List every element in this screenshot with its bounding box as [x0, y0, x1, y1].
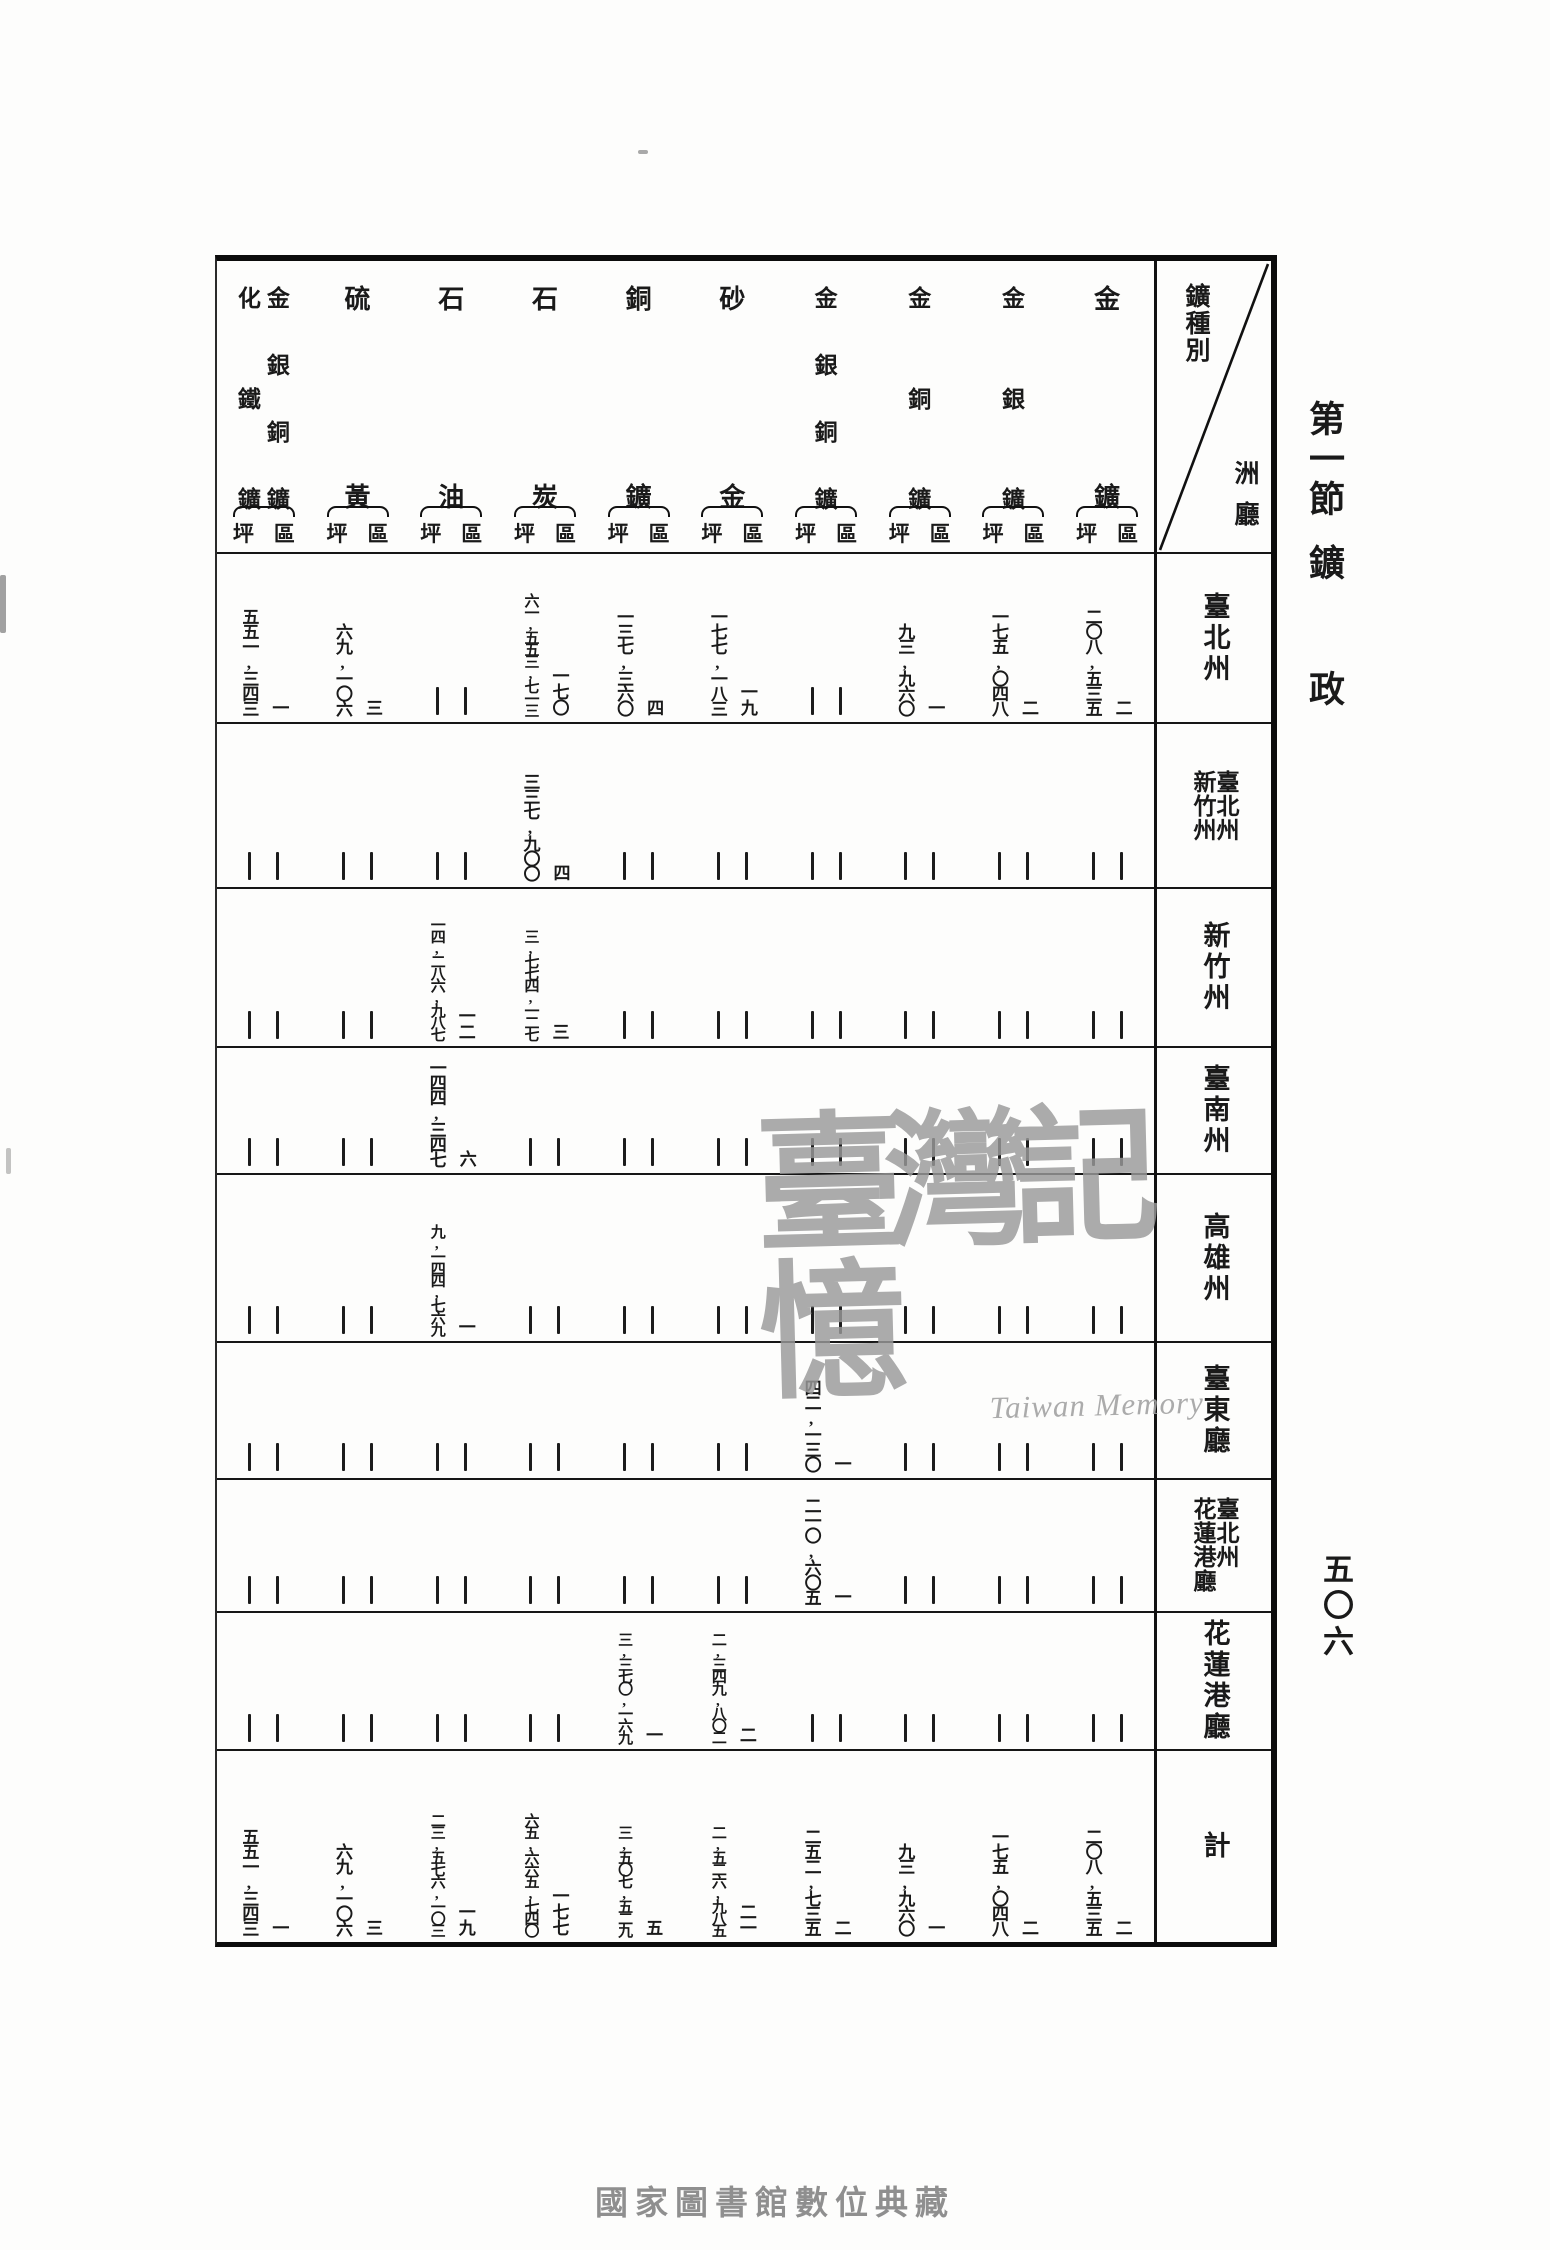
empty-dash — [557, 1138, 560, 1166]
table-cell — [1060, 1611, 1154, 1750]
empty-dash — [529, 1714, 532, 1742]
cell-values — [873, 889, 967, 1046]
cell-values — [967, 1343, 1061, 1478]
empty-dash — [1026, 1443, 1029, 1471]
cell-values: 九,一四四,七六九一 — [404, 1175, 498, 1341]
empty-dash — [342, 1011, 345, 1039]
ku-value: 四 — [551, 864, 568, 880]
cell-values: 一四四,三四七六 — [404, 1048, 498, 1174]
empty-dash — [436, 687, 439, 715]
column-header: 金銀銅鑛坪區 — [779, 261, 873, 552]
empty-dash — [998, 1306, 1001, 1334]
empty-dash — [1120, 1011, 1123, 1039]
empty-dash — [464, 1714, 467, 1742]
empty-dash — [811, 687, 814, 715]
column-name: 銅鑛 — [592, 287, 686, 511]
empty-dash — [529, 1138, 532, 1166]
cell-values — [311, 1343, 405, 1478]
column-header: 硫黃坪區 — [311, 261, 405, 552]
tsubo-value: 六一,五五三,七一三 — [522, 593, 537, 715]
scan-artifact — [6, 1148, 11, 1174]
cell-values — [592, 1175, 686, 1341]
region-label-text: 臺南州 — [1201, 1064, 1228, 1157]
cell-values: 二〇八,五三五二 — [1060, 1751, 1154, 1942]
empty-dash — [1092, 852, 1095, 880]
unit-count-label: 區 — [1117, 518, 1138, 548]
region-label: 臺南州 — [1157, 1048, 1271, 1174]
brace-icon — [233, 506, 295, 517]
table-cell — [873, 1046, 967, 1174]
unit-row: 坪區 — [233, 506, 295, 548]
cell-values — [217, 1343, 311, 1478]
column-name-line: 石油 — [438, 287, 464, 511]
section-title-text-2: 鑛 — [1306, 544, 1342, 584]
region-label-cell: 臺南州 — [1157, 1046, 1271, 1174]
region-label-cell: 臺北州 花蓮港廳 — [1157, 1478, 1271, 1611]
tsubo-value: 二,三四九,八〇二 — [710, 1632, 725, 1742]
ku-value: 一 — [926, 699, 943, 715]
cell-values: 六一,五五三,七一三一七〇 — [498, 554, 592, 722]
table-cell: 一四,二八六,九八七一二 — [404, 887, 498, 1046]
cell-values — [873, 1480, 967, 1611]
unit-area-label: 坪 — [982, 518, 1003, 548]
table-cell — [217, 1046, 311, 1174]
cell-values: 九三,九六〇一 — [873, 554, 967, 722]
region-label-text: 臺北州 新竹州 — [1191, 770, 1237, 842]
empty-dash — [248, 1138, 251, 1166]
table-cell — [1060, 887, 1154, 1046]
column-name-line: 石炭 — [532, 287, 558, 511]
table-cell — [498, 1173, 592, 1341]
table-cell — [686, 1478, 780, 1611]
unit-labels: 坪區 — [420, 518, 482, 548]
scan-artifact — [0, 575, 6, 633]
table-cell: 二〇八,五三五二 — [1060, 1749, 1154, 1942]
cell-values — [311, 1613, 405, 1750]
table-cell — [217, 1478, 311, 1611]
region-label-text: 高雄州 — [1201, 1212, 1228, 1305]
unit-area-label: 坪 — [1076, 518, 1097, 548]
column-name-line: 金銀銅鑛 — [267, 287, 290, 511]
cell-values — [1060, 1175, 1154, 1341]
mine-type-column: 石炭坪區六一,五五三,七一三一七〇三三七,九〇〇四三,七七四,一二七三六五,六六… — [498, 261, 592, 1942]
empty-dash — [839, 687, 842, 715]
cell-values — [404, 724, 498, 887]
table-cell — [592, 722, 686, 887]
column-header: 石油坪區 — [404, 261, 498, 552]
mine-type-column: 砂金坪區一七七,一八三一九二,三四九,八〇二二二,五二六,九八五二一 — [686, 261, 780, 1942]
region-label: 臺東廳 — [1157, 1343, 1271, 1478]
empty-dash — [1092, 1443, 1095, 1471]
table-cell — [1060, 1046, 1154, 1174]
ku-value: 三 — [550, 1023, 567, 1039]
ku-value: 二一 — [738, 1903, 755, 1935]
cell-values: 六五,六六五,七四〇一七七 — [498, 1751, 592, 1942]
cell-values: 二,三四九,八〇二二 — [686, 1613, 780, 1750]
mine-type-column: 石油坪區一四,二八六,九八七一二一四四,三四七六九,一四四,七六九一二三,五七六… — [404, 261, 498, 1942]
unit-labels: 坪區 — [795, 518, 857, 548]
cell-values — [498, 1175, 592, 1341]
tsubo-value: 六九,一〇六 — [334, 623, 351, 715]
unit-count-label: 區 — [461, 518, 482, 548]
empty-dash — [529, 1576, 532, 1604]
empty-dash — [932, 1138, 935, 1166]
table-cell — [217, 722, 311, 887]
table-cell — [498, 1478, 592, 1611]
column-name-char: 砂 — [719, 287, 745, 313]
empty-dash — [623, 1138, 626, 1166]
region-label-text: 計 — [1201, 1831, 1228, 1862]
cell-values — [1060, 1048, 1154, 1174]
empty-dash — [932, 1011, 935, 1039]
empty-dash — [839, 852, 842, 880]
unit-area-label: 坪 — [420, 518, 441, 548]
unit-labels: 坪區 — [701, 518, 763, 548]
tsubo-value: 九,一四四,七六九 — [429, 1224, 444, 1334]
cell-values — [967, 1613, 1061, 1750]
tsubo-value: 二〇八,五三五 — [1084, 1828, 1101, 1935]
table-cell — [592, 1341, 686, 1478]
tsubo-value: 二,五二六,九八五 — [710, 1825, 725, 1935]
cell-values: 一七七,一八三一九 — [686, 554, 780, 722]
region-label-text: 花蓮港廳 — [1201, 1619, 1228, 1743]
ku-value: 一九 — [739, 683, 756, 715]
corner-region-label: 洲廳 — [1232, 460, 1257, 542]
table-cell: 二,三四九,八〇二二 — [686, 1611, 780, 1750]
cell-values: 二三,五七六,一〇三一九 — [404, 1751, 498, 1942]
table-cell — [967, 1046, 1061, 1174]
empty-dash — [651, 1306, 654, 1334]
column-header: 砂金坪區 — [686, 261, 780, 552]
empty-dash — [998, 1011, 1001, 1039]
region-label: 新竹州 — [1157, 889, 1271, 1046]
cell-values — [779, 1175, 873, 1341]
unit-area-label: 坪 — [701, 518, 722, 548]
table-cell — [967, 1611, 1061, 1750]
column-name: 金銀銅鑛化鐵鑛 — [217, 287, 311, 511]
table-cell: 一七七,一八三一九 — [686, 552, 780, 722]
cell-values — [404, 1613, 498, 1750]
table-cell — [311, 1173, 405, 1341]
empty-dash — [745, 1011, 748, 1039]
unit-row: 坪區 — [982, 506, 1044, 548]
cell-values — [1060, 889, 1154, 1046]
unit-count-label: 區 — [1023, 518, 1044, 548]
empty-dash — [998, 852, 1001, 880]
empty-dash — [1026, 1138, 1029, 1166]
empty-dash — [436, 1576, 439, 1604]
table-cell — [404, 722, 498, 887]
tsubo-value: 五五一,三四三 — [240, 608, 257, 715]
cell-values — [592, 889, 686, 1046]
region-label-cell: 花蓮港廳 — [1157, 1611, 1271, 1750]
ku-value: 一 — [926, 1919, 943, 1935]
ku-value: 三 — [364, 699, 381, 715]
ku-value: 四 — [645, 699, 662, 715]
empty-dash — [904, 1576, 907, 1604]
empty-dash — [464, 852, 467, 880]
table-cell: 六九,一〇六三 — [311, 1749, 405, 1942]
empty-dash — [623, 1576, 626, 1604]
table-cell: 一三七,三六〇四 — [592, 552, 686, 722]
ku-value: 三 — [364, 1919, 381, 1935]
region-label: 臺北州 新竹州 — [1157, 724, 1271, 887]
tsubo-value: 三,五〇七,五二九 — [616, 1825, 631, 1935]
empty-dash — [248, 1714, 251, 1742]
ku-value: 一 — [644, 1726, 661, 1742]
empty-dash — [651, 1576, 654, 1604]
table-cell: 六九,一〇六三 — [311, 552, 405, 722]
cell-values — [967, 1048, 1061, 1174]
unit-labels: 坪區 — [514, 518, 576, 548]
ku-value: 二 — [1020, 699, 1037, 715]
unit-row: 坪區 — [420, 506, 482, 548]
mine-type-column: 金鑛坪區二〇八,五三五二二〇八,五三五二 — [1060, 261, 1154, 1942]
empty-dash — [745, 1306, 748, 1334]
empty-dash — [342, 1443, 345, 1471]
unit-labels: 坪區 — [233, 518, 295, 548]
cell-values — [779, 554, 873, 722]
region-label-text: 新竹州 — [1201, 921, 1228, 1014]
empty-dash — [839, 1138, 842, 1166]
column-name-line: 金銀銅鑛 — [815, 287, 838, 511]
tsubo-value: 二三,五七六,一〇三 — [429, 1813, 444, 1935]
cell-values: 三,五〇七,五二九五 — [592, 1751, 686, 1942]
ku-value: 一 — [833, 1588, 850, 1604]
table-cell: 二,五二六,九八五二一 — [686, 1749, 780, 1942]
empty-dash — [248, 1443, 251, 1471]
column-name: 金銅鑛 — [873, 287, 967, 511]
cell-values: 二五二,七三五二 — [779, 1751, 873, 1942]
empty-dash — [342, 1714, 345, 1742]
empty-dash — [248, 852, 251, 880]
empty-dash — [998, 1138, 1001, 1166]
empty-dash — [248, 1576, 251, 1604]
empty-dash — [276, 1576, 279, 1604]
region-label-text: 臺北州 花蓮港廳 — [1191, 1497, 1237, 1593]
table-cell — [686, 1173, 780, 1341]
table-cell: 二〇八,五三五二 — [1060, 552, 1154, 722]
empty-dash — [1026, 852, 1029, 880]
cell-values: 一三七,三六〇四 — [592, 554, 686, 722]
cell-values — [686, 1175, 780, 1341]
column-name: 金銀鑛 — [967, 287, 1061, 511]
column-name-char: 金 — [267, 287, 290, 310]
mine-type-column: 硫黃坪區六九,一〇六三六九,一〇六三 — [311, 261, 405, 1942]
cell-values: 三,三七〇,一六九一 — [592, 1613, 686, 1750]
empty-dash — [1092, 1011, 1095, 1039]
table-cell: 六一,五五三,七一三一七〇 — [498, 552, 592, 722]
mine-type-column: 金銀鑛坪區一七五,〇四八二一七五,〇四八二 — [967, 261, 1061, 1942]
cell-values: 二〇八,五三五二 — [1060, 554, 1154, 722]
empty-dash — [904, 1138, 907, 1166]
table-cell — [779, 552, 873, 722]
empty-dash — [998, 1714, 1001, 1742]
table-cell: 一七五,〇四八二 — [967, 552, 1061, 722]
mine-statistics-table: 金銀銅鑛化鐵鑛坪區五五一,三四三一五五一,三四三一硫黃坪區六九,一〇六三六九,一… — [215, 255, 1277, 1947]
cell-values — [311, 889, 405, 1046]
cell-values — [311, 1175, 405, 1341]
column-name-char: 金 — [1002, 287, 1025, 310]
unit-count-label: 區 — [742, 518, 763, 548]
table-cell — [873, 1478, 967, 1611]
empty-dash — [998, 1443, 1001, 1471]
table-cell: 二一〇,六〇五一 — [779, 1478, 873, 1611]
table-cell — [217, 887, 311, 1046]
region-label-text: 臺東廳 — [1201, 1364, 1228, 1457]
cell-values — [873, 1343, 967, 1478]
cell-values — [217, 1613, 311, 1750]
table-cell — [967, 1173, 1061, 1341]
column-name-char: 金 — [908, 287, 931, 310]
region-label-text: 臺北州 — [1201, 592, 1228, 685]
column-name-line: 化鐵鑛 — [238, 287, 261, 511]
cell-values — [404, 554, 498, 722]
empty-dash — [998, 1576, 1001, 1604]
cell-values — [873, 724, 967, 887]
mine-type-column: 銅鑛坪區一三七,三六〇四三,三七〇,一六九一三,五〇七,五二九五 — [592, 261, 686, 1942]
cell-values — [404, 1480, 498, 1611]
table-cell: 五五一,三四三一 — [217, 552, 311, 722]
cell-values: 四二,一三〇一 — [779, 1343, 873, 1478]
empty-dash — [811, 852, 814, 880]
region-label-cell: 計 — [1157, 1749, 1271, 1942]
empty-dash — [370, 1714, 373, 1742]
unit-area-label: 坪 — [889, 518, 910, 548]
section-title-text-3: 政 — [1306, 670, 1342, 710]
region-label-column: 鑛種別洲廳臺北州臺北州 新竹州新竹州臺南州高雄州臺東廳臺北州 花蓮港廳花蓮港廳計 — [1154, 261, 1271, 1942]
table-cell — [592, 1173, 686, 1341]
empty-dash — [1026, 1011, 1029, 1039]
page-number: 五〇六 — [1320, 1553, 1351, 1661]
unit-count-label: 區 — [274, 518, 295, 548]
tsubo-value: 六九,一〇六 — [334, 1843, 351, 1935]
table-cell — [498, 1341, 592, 1478]
cell-values: 五五一,三四三一 — [217, 1751, 311, 1942]
empty-dash — [436, 1714, 439, 1742]
unit-row: 坪區 — [608, 506, 670, 548]
cell-values — [779, 889, 873, 1046]
empty-dash — [623, 1306, 626, 1334]
table-cell — [217, 1611, 311, 1750]
unit-labels: 坪區 — [889, 518, 951, 548]
cell-values — [217, 1175, 311, 1341]
table-cell: 五五一,三四三一 — [217, 1749, 311, 1942]
region-label-cell: 高雄州 — [1157, 1173, 1271, 1341]
region-label: 花蓮港廳 — [1157, 1613, 1271, 1750]
ku-value: 一 — [270, 699, 287, 715]
table-corner-cell: 鑛種別洲廳 — [1157, 261, 1271, 552]
brace-icon — [701, 506, 763, 517]
table-cell: 六五,六六五,七四〇一七七 — [498, 1749, 592, 1942]
cell-values — [967, 889, 1061, 1046]
empty-dash — [811, 1138, 814, 1166]
unit-row: 坪區 — [701, 506, 763, 548]
table-cell — [1060, 1341, 1154, 1478]
empty-dash — [529, 1306, 532, 1334]
table-cell — [592, 887, 686, 1046]
empty-dash — [904, 1443, 907, 1471]
cell-values — [779, 724, 873, 887]
brace-icon — [889, 506, 951, 517]
empty-dash — [904, 1306, 907, 1334]
cell-values — [217, 889, 311, 1046]
cell-values — [1060, 1613, 1154, 1750]
empty-dash — [464, 1443, 467, 1471]
empty-dash — [932, 1306, 935, 1334]
section-title: 第一節 鑛 政 — [1306, 400, 1342, 710]
table-cell — [311, 1046, 405, 1174]
table-cell — [592, 1046, 686, 1174]
ku-value: 二 — [738, 1726, 755, 1742]
unit-area-label: 坪 — [514, 518, 535, 548]
empty-dash — [651, 1443, 654, 1471]
cell-values — [873, 1048, 967, 1174]
region-label-cell: 臺北州 新竹州 — [1157, 722, 1271, 887]
column-name-line: 金銀鑛 — [1002, 287, 1025, 511]
column-name-line: 銅鑛 — [626, 287, 652, 511]
column-name-char: 銅 — [626, 287, 652, 313]
table-cell — [1060, 1173, 1154, 1341]
table-cell — [873, 1611, 967, 1750]
table-cell — [686, 887, 780, 1046]
empty-dash — [1120, 852, 1123, 880]
tsubo-value: 一七五,〇四八 — [990, 1828, 1007, 1935]
empty-dash — [932, 1714, 935, 1742]
unit-row: 坪區 — [514, 506, 576, 548]
column-name-char: 鐵 — [238, 388, 261, 411]
cell-values — [686, 1048, 780, 1174]
empty-dash — [557, 1306, 560, 1334]
cell-values — [592, 1048, 686, 1174]
empty-dash — [464, 1576, 467, 1604]
empty-dash — [1092, 1138, 1095, 1166]
tsubo-value: 四二,一三〇 — [803, 1379, 820, 1471]
table-cell — [404, 1341, 498, 1478]
table-cell — [1060, 1478, 1154, 1611]
table-cell — [779, 722, 873, 887]
tsubo-value: 二〇八,五三五 — [1084, 608, 1101, 715]
unit-count-label: 區 — [836, 518, 857, 548]
column-header: 金銅鑛坪區 — [873, 261, 967, 552]
table-cell — [1060, 722, 1154, 887]
empty-dash — [811, 1011, 814, 1039]
column-name-line: 砂金 — [719, 287, 745, 511]
tsubo-value: 一四四,三四七 — [428, 1059, 445, 1166]
unit-row: 坪區 — [1076, 506, 1138, 548]
table-cell: 二五二,七三五二 — [779, 1749, 873, 1942]
empty-dash — [557, 1714, 560, 1742]
table-cell — [592, 1478, 686, 1611]
cell-values: 九三,九六〇一 — [873, 1751, 967, 1942]
cell-values — [967, 1175, 1061, 1341]
empty-dash — [904, 852, 907, 880]
cell-values — [592, 1343, 686, 1478]
empty-dash — [811, 1714, 814, 1742]
column-header: 金鑛坪區 — [1060, 261, 1154, 552]
empty-dash — [745, 1138, 748, 1166]
empty-dash — [932, 1576, 935, 1604]
brace-icon — [795, 506, 857, 517]
cell-values: 二一〇,六〇五一 — [779, 1480, 873, 1611]
cell-values — [967, 724, 1061, 887]
table-cell — [873, 722, 967, 887]
ku-value: 六 — [458, 1150, 475, 1166]
ku-value: 一七〇 — [550, 667, 567, 715]
column-header: 銅鑛坪區 — [592, 261, 686, 552]
column-header: 金銀銅鑛化鐵鑛坪區 — [217, 261, 311, 552]
empty-dash — [932, 1443, 935, 1471]
